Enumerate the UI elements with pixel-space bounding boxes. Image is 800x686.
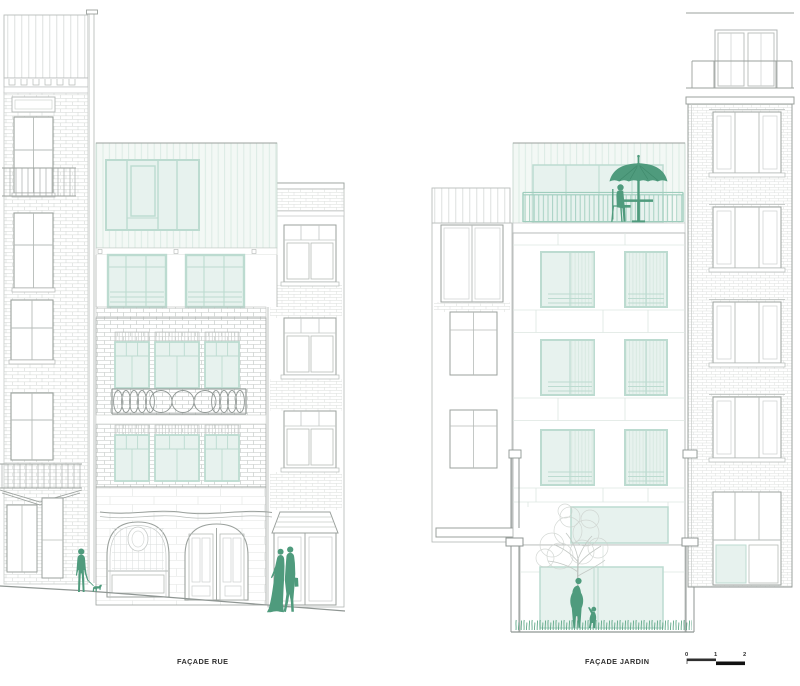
grass <box>514 618 692 632</box>
garden-main-building <box>513 143 685 632</box>
top-floor-window <box>108 255 166 307</box>
parapet <box>266 183 344 189</box>
roof-penthouse <box>686 30 794 88</box>
scale-tick-0: 0 <box>685 652 688 658</box>
street-right-neighbor-building <box>266 183 344 607</box>
scale-bar-segment-2 <box>716 662 745 666</box>
cornice-ledge <box>436 528 522 537</box>
scale-tick-1: 1 <box>714 652 718 658</box>
drawing-labels: FAÇADE RUE FAÇADE JARDIN <box>177 657 649 666</box>
brick-floor-window <box>155 425 199 481</box>
neighbor-window <box>709 205 785 273</box>
neighbor-window <box>709 300 785 368</box>
scale-bar: 0 1 2 <box>685 652 746 665</box>
neighbor-window <box>450 312 497 375</box>
neighbor-window <box>12 213 55 292</box>
street-main-building <box>96 143 277 605</box>
garden-right-neighbor-building <box>686 13 794 587</box>
neighbor-window <box>450 410 497 468</box>
brick-floor-window <box>205 425 239 481</box>
strip-window <box>571 507 668 543</box>
neighbor-window <box>441 225 503 302</box>
brick-band <box>96 307 266 318</box>
elevation-drawing: FAÇADE RUE FAÇADE JARDIN 0 1 2 <box>0 0 800 686</box>
scale-bar-segment-1 <box>687 659 716 662</box>
entry-door <box>185 524 248 600</box>
shop-window <box>107 522 169 597</box>
cornice <box>686 97 794 104</box>
label-facade-rue: FAÇADE RUE <box>177 657 228 666</box>
neighbor-window <box>9 300 55 364</box>
terrace-slab <box>513 223 685 233</box>
facade-panel <box>12 97 55 112</box>
brick-floor-window <box>115 332 149 388</box>
mansard-roof <box>96 143 277 248</box>
neighbor-window <box>281 411 339 472</box>
terrace-railing <box>523 192 683 222</box>
scale-tick-2: 2 <box>743 652 746 658</box>
drawing-sheet: FAÇADE RUE FAÇADE JARDIN 0 1 2 <box>0 0 800 686</box>
brick-floor-window <box>205 332 239 388</box>
facade-jardin-panel <box>432 13 794 632</box>
facade-rue-panel <box>0 10 345 612</box>
top-floor-window <box>186 255 244 307</box>
neighbor-ground-window <box>7 498 63 578</box>
neighbor-window <box>12 117 55 197</box>
garden-left-neighbor-building <box>432 188 522 542</box>
neighbor-window <box>281 225 339 286</box>
street-left-neighbor-building <box>0 15 88 584</box>
handbag <box>294 578 298 587</box>
brick-floor-window <box>115 425 149 481</box>
mansard-window <box>106 160 199 230</box>
neighbor-window <box>11 393 53 460</box>
facade-body <box>513 233 685 545</box>
neighbor-window <box>281 318 339 379</box>
brick-floor-window <box>155 332 199 388</box>
stone-ground-floor <box>96 487 272 605</box>
label-facade-jardin: FAÇADE JARDIN <box>585 657 649 666</box>
neighbor-tall-window <box>713 492 781 585</box>
dentil-cornice <box>4 78 88 93</box>
neighbor-window <box>709 395 785 463</box>
neighbor-window <box>709 110 785 178</box>
